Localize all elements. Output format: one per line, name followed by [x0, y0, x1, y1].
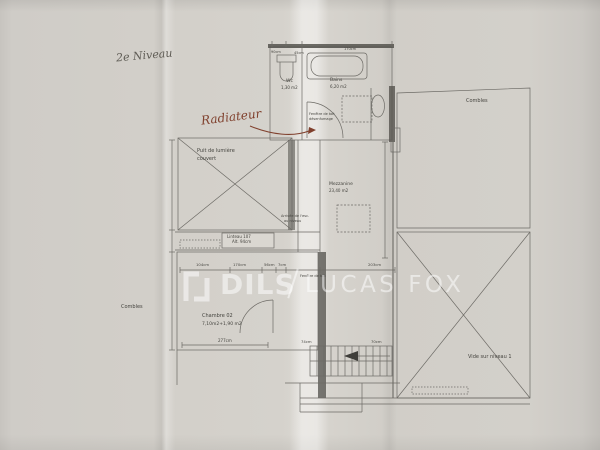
dimension-top-3: 170cm	[344, 47, 356, 51]
annotation-stair-arrival-1: Arrivée de l'esc.	[281, 214, 309, 218]
sanitary-block	[268, 41, 395, 142]
hatch-strip	[180, 240, 220, 248]
room-label-wc: Wc	[286, 79, 293, 84]
dimension-chambre-width: 277cm	[218, 339, 232, 344]
mezzanine-block	[298, 140, 393, 398]
dimension-mid-1: 104cm	[196, 263, 209, 267]
room-label-bains: Bains	[330, 78, 342, 83]
combles-right-block	[391, 88, 530, 228]
dimension-top-1: 90cm	[271, 50, 281, 54]
void-block	[300, 232, 530, 404]
room-label-vide: Vide sur niveau 1	[468, 355, 512, 361]
mezzanine-hatch	[337, 205, 370, 232]
room-area-chambre: 7,10m2+1,90 m2	[202, 322, 242, 327]
hatch-strip	[412, 387, 468, 394]
dimension-mid-3: 56cm	[264, 263, 275, 267]
bathtub-icon	[307, 53, 367, 79]
roof-window-bains	[342, 96, 372, 122]
annotation-roof-window-mezz: Fenêtre de toit	[300, 274, 326, 278]
radiator-arrow	[250, 126, 316, 134]
room-label-combles-left: Combles	[121, 305, 143, 311]
room-area-mezzanine: 23,40 m2	[329, 189, 348, 194]
floor-plan-photo: 2e Niveau Radiateur Wc 1,30 m2 Bains 6,2…	[0, 0, 600, 450]
annotation-linteau-2: Alt. 94cm	[232, 240, 251, 245]
dimension-stair-1: 74cm	[301, 340, 312, 344]
chambre-block	[177, 252, 400, 412]
door-arc-chambre	[240, 300, 273, 333]
wall-segment	[389, 86, 395, 142]
annotation-roof-window-2: désenfumage	[309, 117, 333, 121]
dimension-top-2: 45cm	[294, 51, 304, 55]
room-area-wc: 1,30 m2	[281, 86, 298, 91]
annotation-stair-arrival-2: au niveau	[284, 219, 301, 223]
dimension-mid-4: 7cm	[278, 263, 286, 267]
room-label-chambre: Chambre 02	[202, 314, 233, 320]
dimension-stair-2: 70cm	[371, 340, 382, 344]
room-label-mezzanine: Mezzanine	[329, 182, 353, 187]
room-label-puit-1: Puit de lumière	[197, 149, 235, 155]
sink-icon	[371, 88, 385, 140]
toilet-icon	[277, 55, 296, 81]
room-area-bains: 6,20 m2	[330, 85, 347, 90]
floor-plan-linework	[0, 0, 600, 450]
top-wall	[268, 44, 394, 48]
annotation-roof-window-1: Fenêtre de toit	[309, 112, 335, 116]
stair-direction-arrow	[344, 351, 358, 361]
dimension-mid-2: 170cm	[233, 263, 246, 267]
room-label-puit-2: couvert	[197, 157, 216, 163]
room-label-combles-right: Combles	[466, 99, 488, 105]
dimension-mid-5: 203cm	[368, 263, 381, 267]
